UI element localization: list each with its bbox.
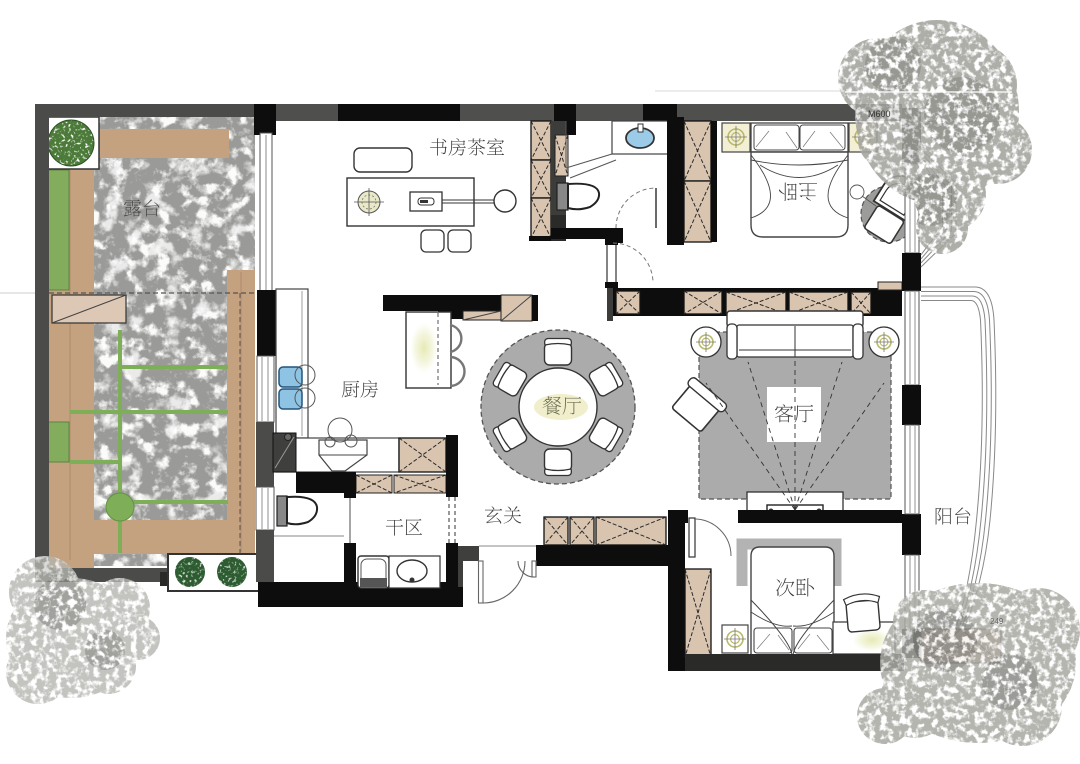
svg-text:249: 249 [990,617,1004,626]
svg-text:M600: M600 [868,109,891,119]
